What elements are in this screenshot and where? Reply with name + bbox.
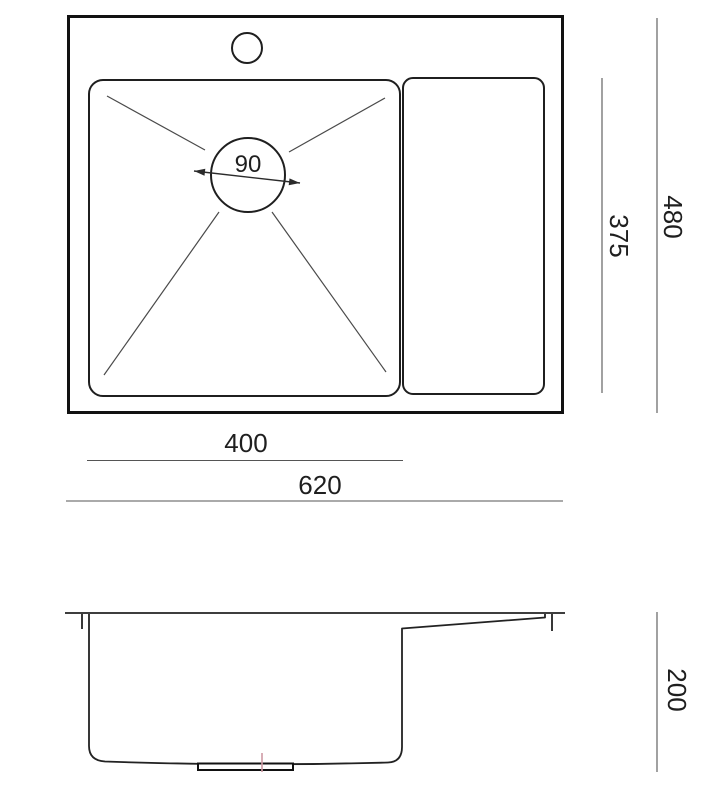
drainboard-section — [403, 78, 544, 394]
height-label: 200 — [662, 668, 692, 711]
faucet-hole — [232, 33, 262, 63]
sink-outer-edge — [69, 17, 563, 413]
drain-diameter-label: 90 — [235, 151, 262, 178]
overall-depth-label: 480 — [658, 195, 688, 238]
inner-depth-label: 375 — [604, 214, 634, 257]
arrowhead-right-icon — [289, 178, 300, 185]
slope-line-top-right — [289, 98, 385, 152]
top-view-dimensions: 375 480 400 620 — [66, 18, 688, 501]
side-view — [65, 613, 565, 772]
sink-technical-drawing-page: 90 375 480 400 620 200 — [0, 0, 727, 800]
slope-line-top-left — [107, 96, 205, 150]
top-view: 90 — [69, 17, 563, 413]
bowl-profile — [89, 614, 545, 764]
arrowhead-left-icon — [194, 169, 205, 176]
slope-line-bottom-right — [272, 212, 386, 372]
drain-fitting — [198, 764, 293, 771]
slope-line-bottom-left — [104, 212, 219, 375]
overall-width-label: 620 — [298, 470, 341, 500]
sink-dimension-drawing: 90 375 480 400 620 200 — [0, 0, 727, 800]
bowl-rim — [89, 80, 400, 396]
side-view-dimensions: 200 — [657, 612, 692, 772]
bowl-width-label: 400 — [224, 428, 267, 458]
